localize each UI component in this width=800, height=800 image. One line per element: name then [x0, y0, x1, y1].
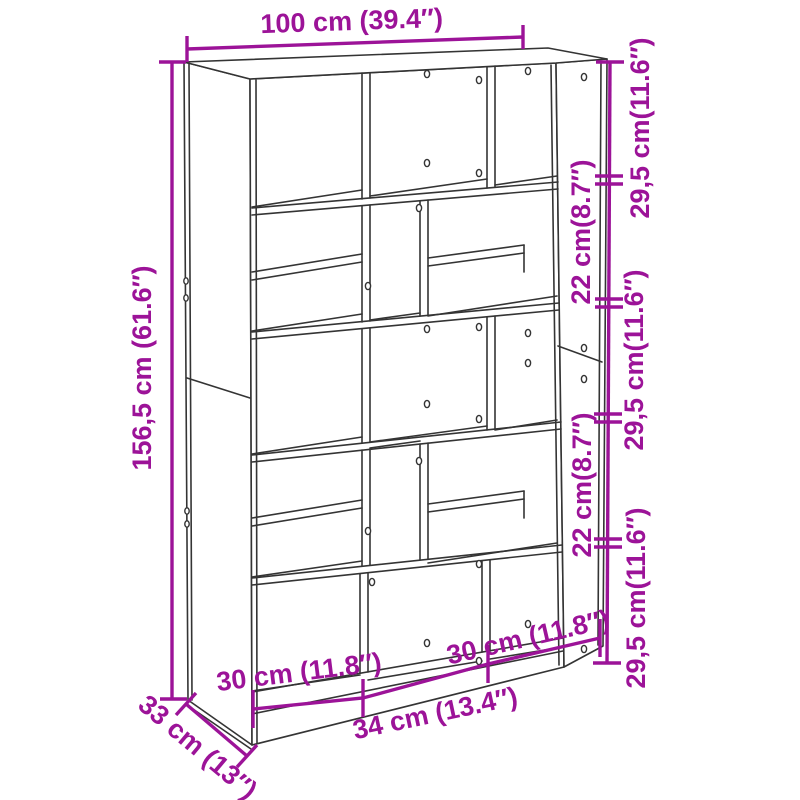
dimension-diagram-canvas: 100 cm (39.4″) 156,5 cm (61.6″) 29,5 cm(… — [0, 0, 800, 800]
dim-right-upper-gap-label: 22 cm(8.7″) — [566, 159, 596, 304]
product-dimension-diagram: 100 cm (39.4″) 156,5 cm (61.6″) 29,5 cm(… — [0, 0, 800, 800]
dim-height-label: 156,5 cm (61.6″) — [127, 265, 157, 470]
bookcase-left-face — [184, 62, 252, 745]
dim-right-bottom-shelf-label: 29,5 cm(11.6″) — [621, 507, 651, 688]
dim-left-height: 156,5 cm (61.6″) — [127, 62, 187, 699]
dim-width-label: 100 cm (39.4″) — [260, 3, 443, 39]
dim-right-middle-shelf-label: 29,5 cm(11.6″) — [619, 269, 649, 450]
dim-right-top-shelf-label: 29,5 cm(11.6″) — [625, 37, 655, 218]
dim-right-lower-gap-label: 22 cm(8.7″) — [567, 412, 597, 557]
